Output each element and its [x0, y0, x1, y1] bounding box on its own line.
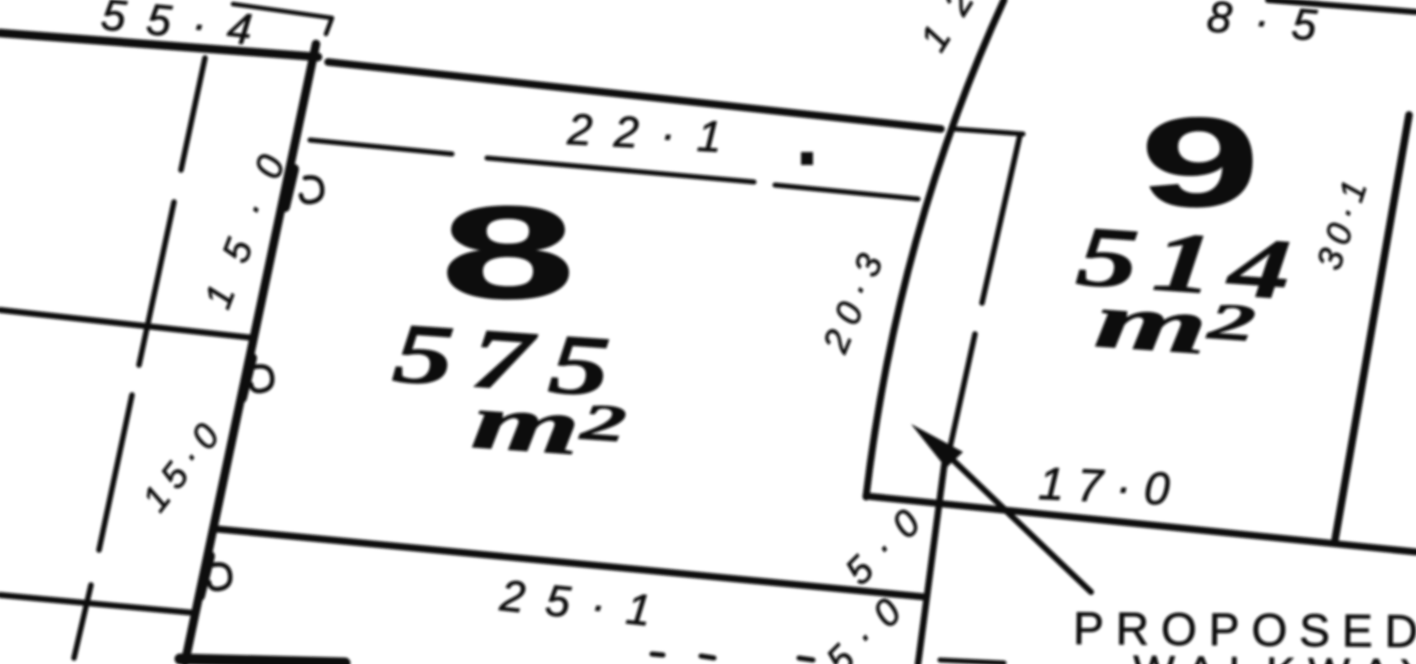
svg-text:WALKWAY 2000: WALKWAY 2000 [1133, 647, 1416, 664]
svg-text:22·1: 22·1 [565, 105, 744, 163]
svg-text:8: 8 [440, 178, 576, 326]
svg-text:9: 9 [1140, 91, 1260, 233]
svg-text:17·0: 17·0 [1038, 457, 1184, 515]
